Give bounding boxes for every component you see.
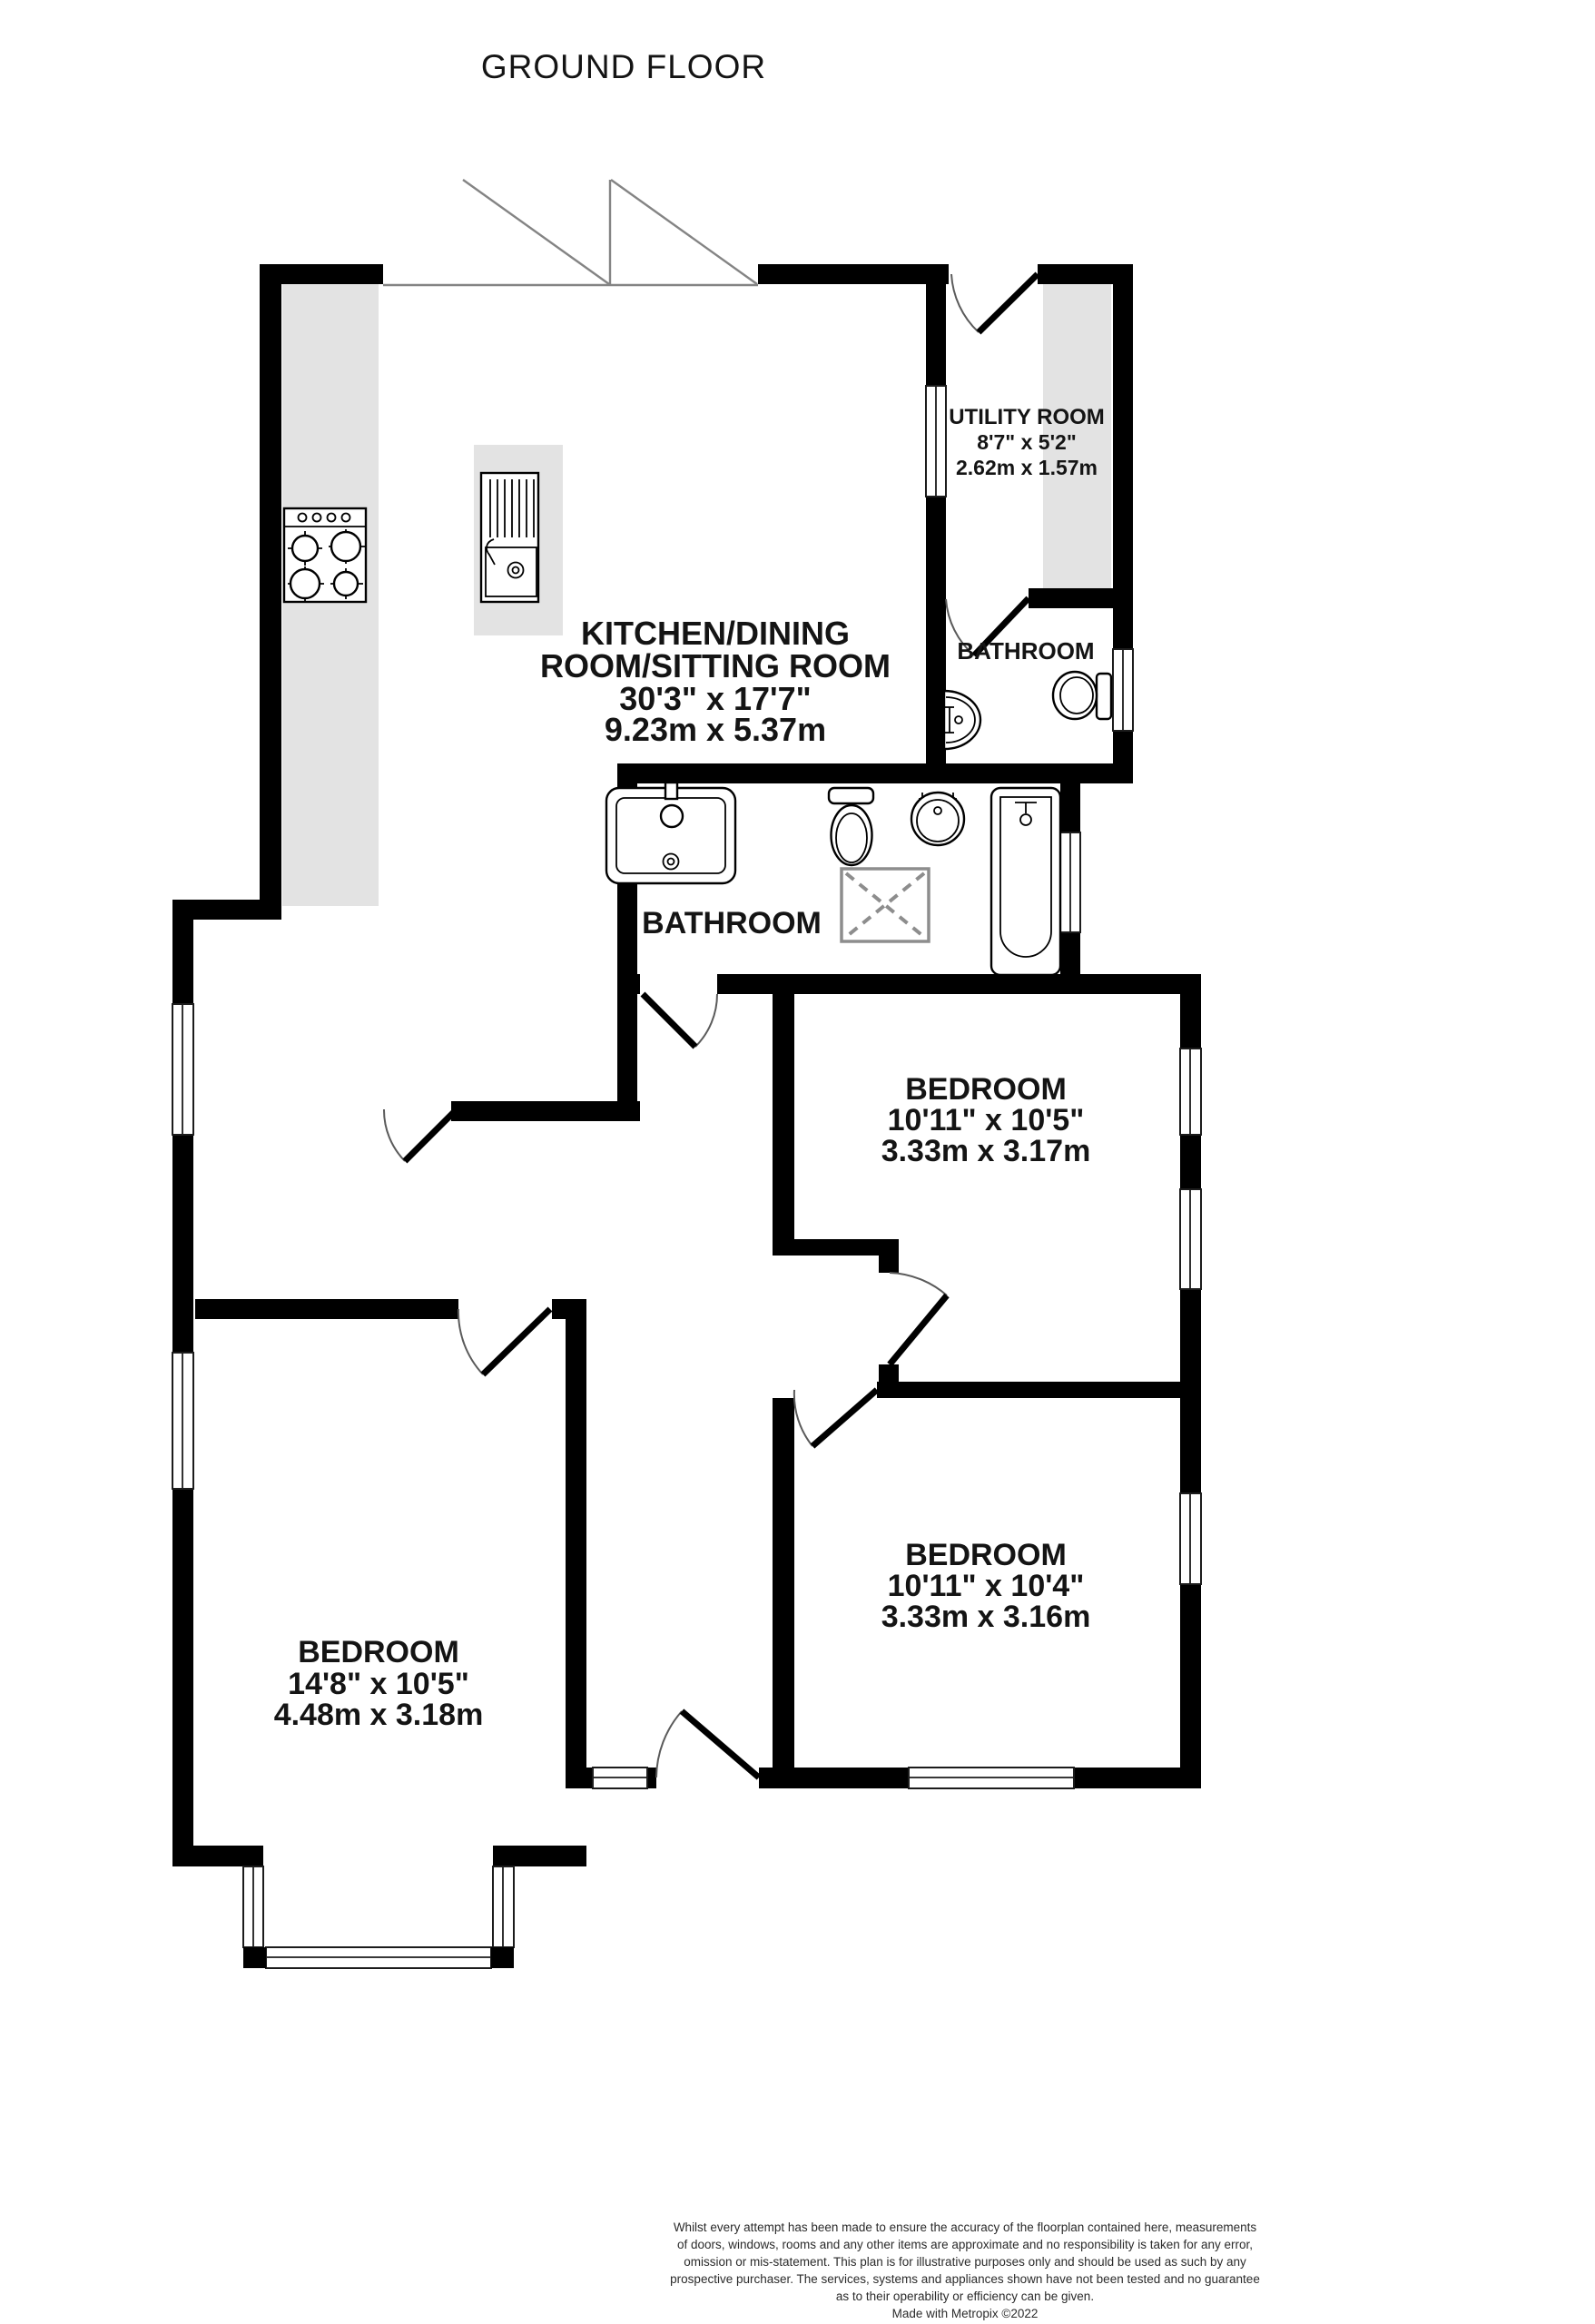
shower-icon <box>842 869 929 941</box>
bedroom-top-right-door <box>890 1273 947 1364</box>
room-label-bathroom-small: BATHROOM <box>957 637 1094 665</box>
window <box>1060 832 1080 932</box>
window <box>1180 1493 1201 1584</box>
svg-text:BATHROOM: BATHROOM <box>642 906 822 940</box>
svg-text:as to their operability or eff: as to their operability or efficiency ca… <box>836 2290 1094 2303</box>
toilet-small-icon <box>1053 672 1111 719</box>
stove-icon <box>284 508 366 602</box>
bedroom-bottom-right-door <box>794 1390 877 1446</box>
svg-text:8'7" x 5'2": 8'7" x 5'2" <box>977 430 1077 454</box>
window <box>1180 1189 1201 1289</box>
svg-text:BATHROOM: BATHROOM <box>957 637 1094 665</box>
ceiling-slope-lines <box>383 180 758 285</box>
window <box>909 1768 1074 1788</box>
svg-text:of doors, windows, rooms and a: of doors, windows, rooms and any other i… <box>677 2238 1253 2251</box>
svg-text:prospective purchaser. The ser: prospective purchaser. The services, sys… <box>670 2272 1260 2286</box>
svg-text:3.33m x 3.17m: 3.33m x 3.17m <box>881 1134 1091 1168</box>
room-label-kitchen: KITCHEN/DINING ROOM/SITTING ROOM 30'3" x… <box>540 615 891 748</box>
window <box>172 1004 193 1135</box>
bedroom-bottom-left-door <box>458 1309 550 1374</box>
toilet-icon <box>829 788 873 865</box>
footer-disclaimer: Whilst every attempt has been made to en… <box>670 2221 1260 2320</box>
svg-text:9.23m x 5.37m: 9.23m x 5.37m <box>605 711 826 748</box>
room-label-bedroom-top-right: BEDROOM 10'11" x 10'5" 3.33m x 3.17m <box>881 1072 1091 1168</box>
svg-text:omission or mis-statement. Thi: omission or mis-statement. This plan is … <box>684 2255 1246 2269</box>
kitchen-hall-door <box>384 1109 457 1161</box>
floorplan-svg: GROUND FLOOR <box>0 0 1595 2324</box>
window <box>593 1768 647 1788</box>
svg-text:10'11" x 10'5": 10'11" x 10'5" <box>888 1103 1085 1137</box>
appliance-icon <box>481 473 538 602</box>
page-title: GROUND FLOOR <box>481 48 766 85</box>
window <box>1180 1049 1201 1135</box>
front-door <box>656 1711 759 1777</box>
bay-window <box>243 1866 514 1968</box>
room-label-bedroom-bottom-left: BEDROOM 14'8" x 10'5" 4.48m x 3.18m <box>274 1635 484 1732</box>
svg-text:BEDROOM: BEDROOM <box>298 1635 459 1669</box>
bathtub-icon <box>991 788 1060 975</box>
svg-text:BEDROOM: BEDROOM <box>905 1072 1067 1107</box>
svg-text:4.48m x 3.18m: 4.48m x 3.18m <box>274 1698 484 1732</box>
utility-entrance-door <box>951 274 1038 332</box>
large-sink-icon <box>606 783 735 883</box>
credit-line: Made with Metropix ©2022 <box>892 2307 1039 2320</box>
svg-text:3.33m x 3.16m: 3.33m x 3.16m <box>881 1600 1091 1634</box>
svg-text:Whilst every attempt has been: Whilst every attempt has been made to en… <box>674 2221 1257 2234</box>
window <box>172 1353 193 1489</box>
pedestal-sink-icon <box>944 691 980 749</box>
svg-text:UTILITY ROOM: UTILITY ROOM <box>949 405 1105 429</box>
window <box>1113 649 1133 731</box>
main-bathroom-door <box>643 994 717 1047</box>
room-label-bedroom-bottom-right: BEDROOM 10'11" x 10'4" 3.33m x 3.16m <box>881 1538 1091 1634</box>
svg-text:BEDROOM: BEDROOM <box>905 1538 1067 1572</box>
svg-text:2.62m x 1.57m: 2.62m x 1.57m <box>956 456 1098 479</box>
window <box>926 386 946 497</box>
svg-text:ROOM/SITTING ROOM: ROOM/SITTING ROOM <box>540 647 891 684</box>
svg-text:KITCHEN/DINING: KITCHEN/DINING <box>581 615 850 652</box>
room-label-bathroom-main: BATHROOM <box>642 906 822 940</box>
svg-text:14'8" x 10'5": 14'8" x 10'5" <box>288 1667 469 1701</box>
round-basin-icon <box>911 793 964 845</box>
svg-text:10'11" x 10'4": 10'11" x 10'4" <box>888 1569 1085 1603</box>
